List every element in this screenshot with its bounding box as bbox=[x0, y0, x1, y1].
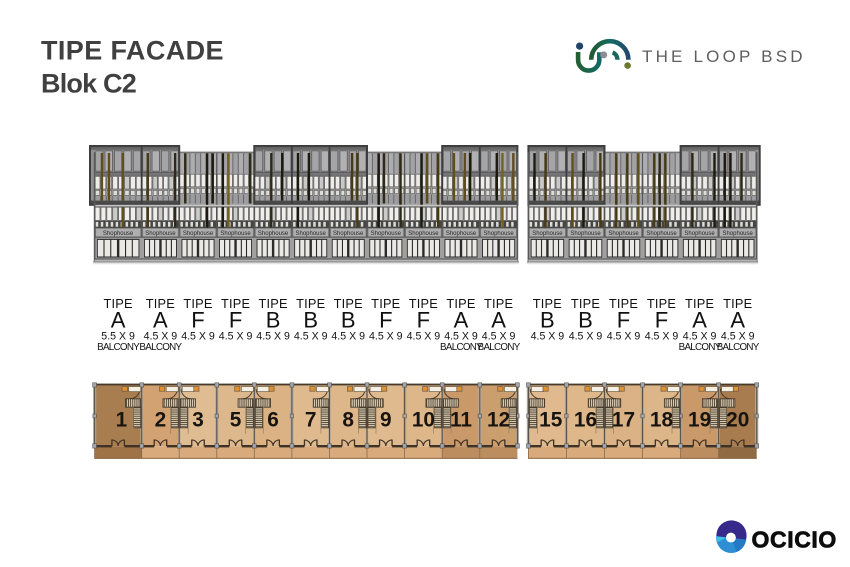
svg-text:Shophouse: Shophouse bbox=[570, 231, 601, 237]
svg-text:Shophouse: Shophouse bbox=[296, 231, 327, 237]
svg-text:Shophouse: Shophouse bbox=[532, 231, 563, 237]
svg-text:F: F bbox=[191, 307, 204, 332]
svg-text:16: 16 bbox=[574, 408, 597, 431]
svg-text:A: A bbox=[454, 307, 469, 332]
svg-text:7: 7 bbox=[305, 408, 317, 431]
svg-text:20: 20 bbox=[726, 408, 749, 431]
svg-text:Shophouse: Shophouse bbox=[258, 231, 289, 237]
svg-text:5: 5 bbox=[230, 408, 242, 431]
svg-text:10: 10 bbox=[412, 408, 435, 431]
svg-text:Shophouse: Shophouse bbox=[684, 231, 715, 237]
svg-text:4.5 X 9: 4.5 X 9 bbox=[181, 330, 215, 342]
svg-text:F: F bbox=[229, 307, 242, 332]
svg-text:F: F bbox=[417, 307, 430, 332]
svg-text:18: 18 bbox=[650, 408, 673, 431]
svg-text:2: 2 bbox=[155, 408, 167, 431]
svg-text:Shophouse: Shophouse bbox=[408, 231, 439, 237]
svg-text:Shophouse: Shophouse bbox=[371, 231, 402, 237]
svg-text:Blok C2: Blok C2 bbox=[41, 69, 136, 99]
svg-text:Shophouse: Shophouse bbox=[646, 231, 677, 237]
svg-text:4.5 X 9: 4.5 X 9 bbox=[407, 330, 441, 342]
svg-text:4.5 X 9: 4.5 X 9 bbox=[721, 330, 755, 342]
svg-text:OCICIO: OCICIO bbox=[752, 526, 837, 552]
svg-text:1: 1 bbox=[116, 408, 128, 431]
svg-text:4.5 X 9: 4.5 X 9 bbox=[256, 330, 290, 342]
svg-text:Shophouse: Shophouse bbox=[723, 231, 754, 237]
svg-text:4.5 X 9: 4.5 X 9 bbox=[569, 330, 603, 342]
svg-text:Shophouse: Shophouse bbox=[220, 231, 251, 237]
svg-text:F: F bbox=[617, 307, 630, 332]
svg-text:4.5 X 9: 4.5 X 9 bbox=[531, 330, 565, 342]
svg-text:4.5 X 9: 4.5 X 9 bbox=[607, 330, 641, 342]
svg-text:4.5 X 9: 4.5 X 9 bbox=[444, 330, 478, 342]
svg-text:TIPE FACADE: TIPE FACADE bbox=[41, 36, 224, 66]
svg-text:Shophouse: Shophouse bbox=[608, 231, 639, 237]
svg-text:B: B bbox=[341, 307, 356, 332]
svg-text:Shophouse: Shophouse bbox=[446, 231, 477, 237]
svg-text:4.5 X 9: 4.5 X 9 bbox=[144, 330, 178, 342]
svg-text:4.5 X 9: 4.5 X 9 bbox=[482, 330, 516, 342]
svg-text:A: A bbox=[692, 307, 707, 332]
svg-text:4.5 X 9: 4.5 X 9 bbox=[683, 330, 717, 342]
svg-text:12: 12 bbox=[487, 408, 510, 431]
svg-text:11: 11 bbox=[450, 408, 472, 431]
svg-text:BALCONY: BALCONY bbox=[139, 342, 182, 353]
svg-text:9: 9 bbox=[380, 408, 392, 431]
svg-text:F: F bbox=[379, 307, 392, 332]
svg-text:4.5 X 9: 4.5 X 9 bbox=[294, 330, 328, 342]
svg-text:Shophouse: Shophouse bbox=[333, 231, 364, 237]
svg-text:Shophouse: Shophouse bbox=[483, 231, 514, 237]
svg-text:THE LOOP BSD: THE LOOP BSD bbox=[642, 47, 806, 66]
svg-text:B: B bbox=[266, 307, 281, 332]
svg-text:3: 3 bbox=[192, 408, 204, 431]
svg-text:B: B bbox=[540, 307, 555, 332]
svg-text:A: A bbox=[491, 307, 506, 332]
svg-text:5.5 X 9: 5.5 X 9 bbox=[101, 330, 135, 342]
svg-text:BALCONY: BALCONY bbox=[717, 342, 760, 353]
svg-text:15: 15 bbox=[539, 408, 562, 431]
svg-text:A: A bbox=[153, 307, 168, 332]
svg-text:F: F bbox=[655, 307, 668, 332]
svg-text:19: 19 bbox=[688, 408, 711, 431]
svg-text:Shophouse: Shophouse bbox=[103, 231, 134, 237]
svg-text:Shophouse: Shophouse bbox=[183, 231, 214, 237]
svg-text:BALCONY: BALCONY bbox=[679, 342, 722, 353]
svg-text:8: 8 bbox=[342, 408, 354, 431]
svg-text:B: B bbox=[303, 307, 318, 332]
svg-text:A: A bbox=[111, 307, 126, 332]
svg-text:17: 17 bbox=[612, 408, 635, 431]
svg-text:A: A bbox=[730, 307, 745, 332]
svg-text:4.5 X 9: 4.5 X 9 bbox=[645, 330, 679, 342]
svg-text:4.5 X 9: 4.5 X 9 bbox=[219, 330, 253, 342]
svg-text:4.5 X 9: 4.5 X 9 bbox=[331, 330, 365, 342]
svg-text:6: 6 bbox=[267, 408, 279, 431]
svg-text:BALCONY: BALCONY bbox=[97, 342, 140, 353]
svg-text:4.5 X 9: 4.5 X 9 bbox=[369, 330, 403, 342]
svg-text:Shophouse: Shophouse bbox=[145, 231, 176, 237]
svg-text:B: B bbox=[578, 307, 593, 332]
svg-text:BALCONY: BALCONY bbox=[478, 342, 521, 353]
